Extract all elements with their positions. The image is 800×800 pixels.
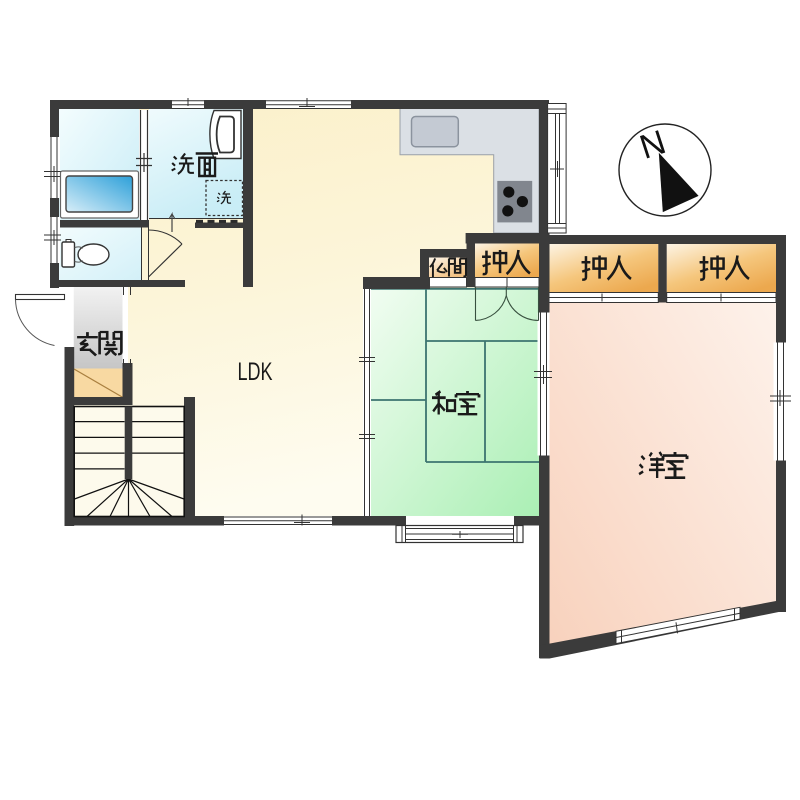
svg-text:LDK: LDK	[238, 358, 273, 386]
